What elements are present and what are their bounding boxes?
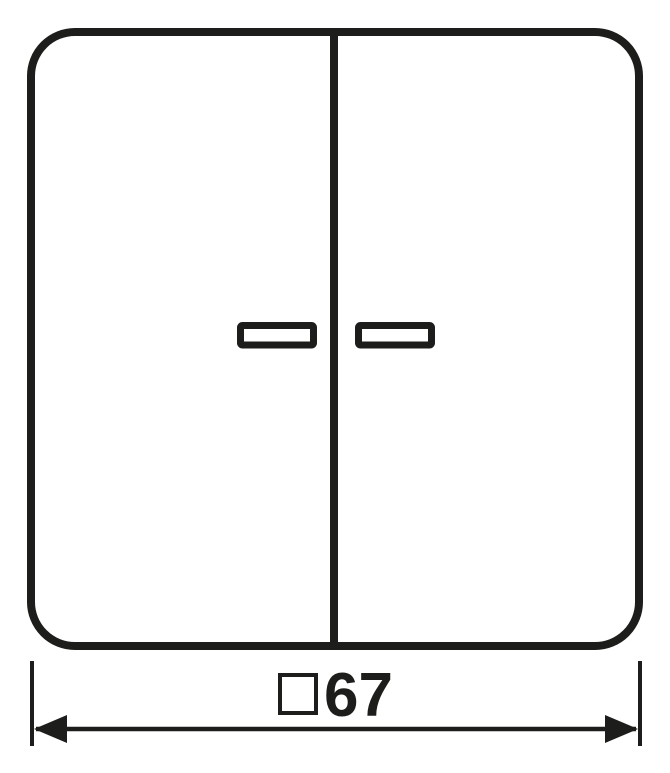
technical-drawing: 67: [0, 0, 670, 773]
right-indicator-window: [359, 326, 432, 346]
square-symbol-icon: [280, 675, 316, 713]
left-indicator-window: [241, 326, 314, 346]
dimension-arrow-right-icon: [605, 715, 638, 743]
switch-dimension-drawing: 67: [0, 0, 670, 773]
dimension-arrow-left-icon: [34, 715, 67, 743]
dimension-value: 67: [324, 661, 393, 730]
